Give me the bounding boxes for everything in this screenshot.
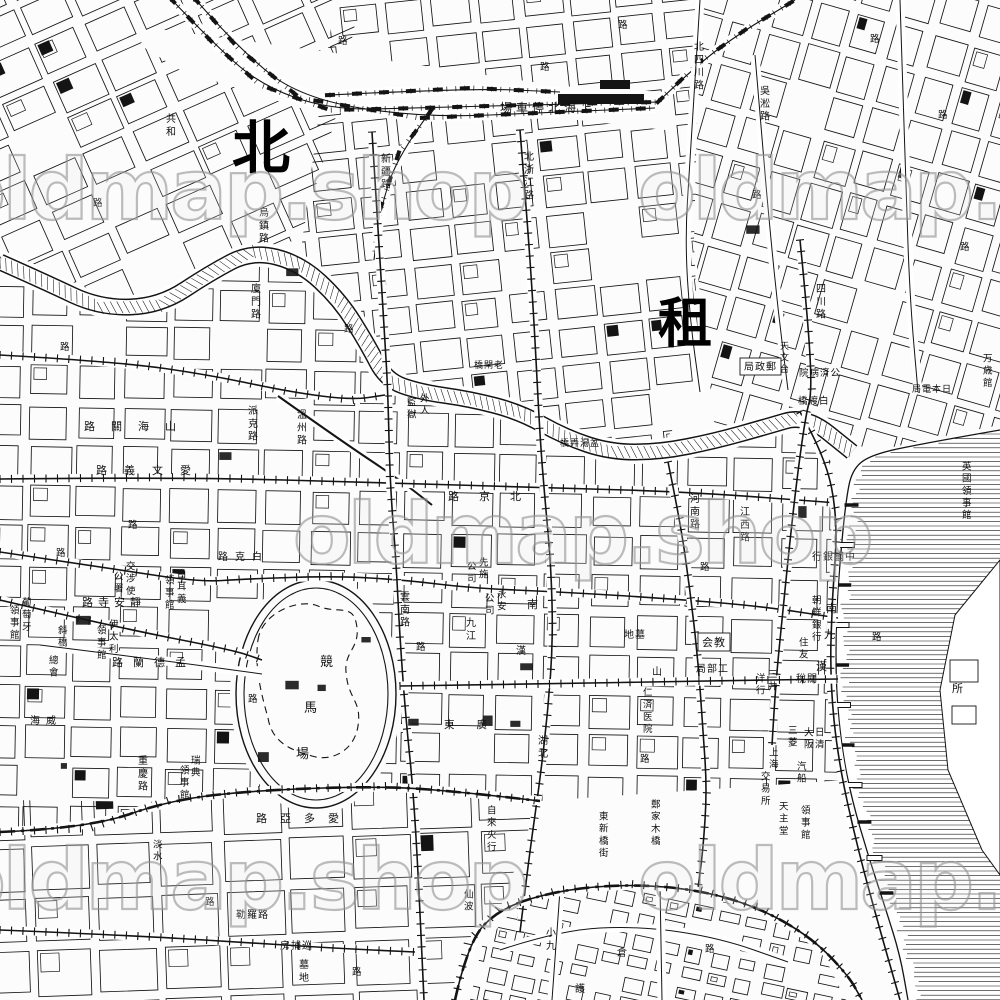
map-label: 井	[768, 681, 779, 693]
map-label: 人	[420, 406, 431, 417]
map-label: 橋閘老	[474, 359, 504, 371]
map-label: 局電本日	[912, 383, 952, 395]
map-label: 涉	[126, 573, 137, 585]
map-label: 來	[487, 818, 498, 829]
map-label: 路	[694, 78, 705, 91]
map-label: 路	[205, 896, 216, 908]
map-label: 永	[497, 589, 508, 601]
map-label: 路亞多愛	[256, 811, 352, 825]
map-label: 大	[804, 727, 815, 739]
map-label: 疆	[381, 166, 392, 178]
map-label: 路京北	[448, 489, 541, 503]
map-label: 獄	[407, 409, 418, 421]
map-label: 路寺安靜	[82, 595, 146, 609]
map-label: 路	[93, 197, 104, 209]
old-shanghai-map: 共和烏鎮路廈門路新疆路北浙江路北四川路吳淞路溫州路派克路路關海山路義文愛路京北橋…	[0, 0, 1000, 1000]
map-label: 淡	[153, 840, 164, 851]
district-big-label: 北	[232, 114, 291, 182]
map-label: 馬	[304, 701, 318, 716]
map-label: 司	[467, 574, 478, 585]
map-label: 海	[769, 759, 780, 771]
map-label: 路	[56, 547, 67, 559]
map-label: 文	[780, 352, 790, 364]
map-label: 路	[248, 430, 259, 443]
map-label: 山	[652, 666, 663, 678]
map-label: 漢	[816, 660, 828, 673]
map-label: 会教	[702, 636, 726, 649]
map-label: 行	[487, 841, 498, 853]
map-label: 三	[768, 670, 779, 681]
map-label: 河	[690, 493, 701, 505]
map-label: 街	[599, 847, 610, 859]
map-label: 路	[816, 308, 827, 321]
map-label: 医	[643, 712, 654, 723]
map-label: 監	[407, 397, 418, 409]
map-label: 克	[248, 418, 259, 430]
map-label: 東	[599, 811, 610, 823]
map-label: 新	[381, 152, 392, 165]
map-label: 東廣	[444, 718, 509, 731]
map-label: 場	[296, 747, 310, 762]
map-label: 火	[487, 830, 498, 841]
map-label: 派	[248, 405, 259, 417]
map-label: 事	[962, 497, 973, 509]
map-label: 公	[485, 594, 496, 605]
map-label: 路	[705, 943, 716, 955]
map-label: 路	[381, 178, 392, 191]
map-label: 小	[546, 927, 557, 939]
map-label: 淞	[760, 98, 771, 110]
map-label: 牙	[22, 622, 33, 633]
map-label: 橋	[58, 637, 69, 649]
map-label: 地	[299, 971, 310, 984]
map-label: 行	[812, 631, 823, 643]
map-label: 館	[180, 789, 191, 801]
map-label: 易	[761, 784, 772, 795]
map-label: 事	[10, 617, 21, 629]
map-label: 烏	[259, 206, 270, 219]
map-label: 司	[485, 606, 496, 617]
map-label: 所	[952, 682, 964, 695]
map-label: 典	[191, 767, 202, 779]
map-label: 路	[338, 35, 349, 47]
map-label: 館	[97, 649, 108, 661]
map-label: 館	[10, 629, 21, 641]
map-canvas[interactable]: 共和烏鎮路廈門路新疆路北浙江路北四川路吳淞路溫州路派克路路關海山路義文愛路京北橋…	[0, 0, 1000, 1000]
map-label: 館	[983, 377, 994, 389]
map-label: 波	[464, 901, 475, 913]
map-label: 江	[740, 506, 751, 518]
map-label: 菱	[788, 737, 799, 749]
map-label: 路	[400, 616, 411, 629]
map-label: 領	[180, 765, 191, 777]
district-big-label: 租	[658, 291, 713, 355]
map-label: 台	[780, 363, 790, 375]
map-label: 汽	[797, 761, 808, 773]
map-label: 路	[251, 308, 262, 321]
map-label: 清	[815, 739, 826, 751]
map-label: 州	[297, 422, 308, 434]
map-label: 局部工	[696, 662, 729, 675]
map-label: 鮮	[812, 607, 823, 619]
map-label: 總	[49, 655, 60, 667]
map-label: 鎮	[259, 219, 270, 232]
map-label: 路	[752, 189, 763, 201]
map-label: 房捕巡	[280, 939, 313, 952]
map-label: 堂	[779, 825, 790, 837]
map-label: 墓	[299, 958, 310, 971]
map-label: 先	[479, 557, 490, 569]
map-label: 鄭	[651, 799, 662, 811]
map-label: 路	[870, 33, 881, 45]
map-label: 領	[165, 575, 176, 587]
map-label: 水	[153, 851, 164, 863]
map-label: 南	[400, 603, 411, 616]
map-label: 橋渡白	[798, 395, 830, 407]
map-label: 天	[780, 342, 790, 352]
map-label: 路	[352, 966, 363, 978]
map-label: 場車停北海上	[500, 100, 596, 115]
map-label: 三	[788, 726, 799, 737]
map-label: 新	[599, 823, 610, 835]
map-label: 路	[297, 434, 308, 447]
map-label: 南	[826, 602, 838, 615]
map-label: 仙	[464, 889, 475, 901]
map-label: 主	[779, 813, 790, 825]
map-label: 路克白	[218, 550, 269, 563]
map-label: 署	[114, 584, 125, 595]
map-label: 院病済公	[799, 367, 841, 379]
map-label: 溫	[297, 409, 308, 421]
map-label: 路	[760, 110, 771, 123]
map-label: 斜	[58, 625, 69, 637]
map-label: 廈	[251, 282, 262, 295]
map-label: 英	[962, 461, 973, 473]
map-label: 万	[983, 354, 994, 365]
map-label: 銀	[812, 619, 823, 631]
map-label: 友	[799, 649, 810, 661]
map-label: 太	[109, 631, 120, 643]
map-label: 西	[740, 520, 751, 531]
map-label: 地墓	[624, 628, 646, 641]
map-label: 日	[815, 728, 826, 739]
map-label: 路蘭德孟	[112, 655, 196, 669]
map-label: 門	[251, 296, 262, 308]
map-label: 重	[138, 754, 149, 767]
map-label: 路	[128, 519, 139, 531]
map-label: 海威	[30, 714, 62, 727]
map-label: 萄	[22, 609, 33, 621]
map-label: 慶	[138, 767, 149, 780]
map-label: 木	[651, 823, 662, 835]
map-label: 局政郵	[744, 360, 777, 373]
map-label: 九	[824, 628, 836, 641]
map-label: 路	[540, 61, 551, 73]
map-label: 外	[420, 393, 431, 405]
map-label: 公	[114, 572, 125, 583]
map-label: 領	[10, 605, 21, 617]
map-label: 路	[618, 19, 629, 31]
map-label: 川	[816, 297, 827, 308]
map-label: 天	[779, 802, 790, 813]
map-label: 路	[138, 780, 149, 793]
map-label: 川	[694, 68, 705, 79]
map-label: 和	[166, 126, 177, 138]
map-label: 路	[248, 693, 259, 705]
map-label: 自	[487, 805, 498, 817]
map-label: 橋	[599, 835, 610, 847]
map-label: 路	[416, 641, 427, 653]
map-label: 歳	[983, 365, 994, 377]
map-label: 路	[259, 232, 270, 245]
map-label: 四	[816, 284, 827, 295]
map-label: 湖	[538, 735, 549, 747]
map-label: 公	[467, 562, 478, 573]
map-label: 南	[527, 598, 539, 611]
map-label: 路	[640, 753, 651, 765]
map-label: 江	[466, 630, 477, 642]
map-label: 事	[165, 587, 176, 599]
map-label: 義	[177, 593, 188, 605]
map-label: 路義文愛	[96, 463, 208, 477]
map-label: 北	[694, 41, 705, 53]
map-label: 吳	[760, 85, 771, 97]
map-label: 事	[97, 637, 108, 649]
map-label: 領	[801, 805, 812, 817]
map-label: 阪	[804, 740, 815, 751]
map-label: 路	[524, 188, 535, 201]
map-label: 稅關	[796, 673, 818, 685]
map-label: 南	[690, 505, 701, 518]
map-label: 事	[180, 777, 191, 789]
map-label: 路	[344, 323, 355, 335]
map-label: 倉	[617, 946, 628, 959]
map-label: 路	[60, 341, 71, 353]
map-label: 耳	[177, 582, 188, 593]
map-label: 北	[524, 151, 535, 163]
map-label: 會	[49, 667, 60, 679]
map-label: 館	[801, 829, 812, 841]
map-label: 伊	[109, 619, 120, 631]
map-label: 住	[799, 637, 810, 649]
map-label: 路	[740, 531, 751, 544]
map-label: 雲	[400, 591, 411, 603]
map-label: 路	[700, 561, 711, 573]
map-label: 漢	[516, 644, 527, 657]
map-label: 上	[769, 748, 780, 759]
map-label: 洋	[756, 673, 767, 685]
map-label: 施	[479, 569, 490, 581]
map-label: 江	[524, 177, 535, 189]
map-label: 船	[797, 773, 808, 785]
map-label: 白	[177, 569, 188, 581]
map-label: 済	[643, 699, 654, 711]
map-label: 路	[872, 631, 883, 643]
map-label: 九	[546, 940, 557, 952]
map-label: 橋弄湯盆	[560, 437, 600, 449]
map-label: 領	[97, 625, 108, 637]
map-label: 競	[320, 655, 334, 670]
map-label: 葡	[22, 597, 33, 609]
map-label: 國	[962, 474, 973, 485]
map-label: 四	[694, 55, 705, 66]
map-label: 浙	[524, 164, 535, 176]
map-label: 院	[643, 723, 654, 735]
map-label: 橋	[651, 835, 662, 847]
map-label: 利	[109, 643, 120, 655]
map-label: 行銀國中	[812, 550, 856, 563]
map-label: 路關海山	[84, 419, 192, 433]
map-label: 交	[126, 561, 137, 573]
map-label: 路	[960, 241, 971, 253]
map-label: 館	[165, 599, 176, 611]
map-label: 九	[466, 617, 477, 629]
map-label: 仁	[643, 687, 654, 699]
map-label: 安	[497, 601, 508, 613]
map-label: 勒羅路	[236, 908, 269, 921]
map-label: 事	[801, 817, 812, 829]
map-label: 行	[756, 685, 767, 697]
map-label: 所	[761, 796, 772, 807]
map-label: 家	[651, 811, 662, 823]
map-label: 交	[761, 771, 772, 783]
map-label: 共	[166, 113, 177, 125]
map-label: 館	[962, 509, 973, 521]
map-label: 護	[575, 982, 586, 995]
map-label: 路	[690, 518, 701, 531]
map-label: 朝	[812, 596, 823, 607]
map-label: 北	[538, 748, 549, 760]
map-label: 瑞	[191, 755, 202, 767]
map-label: 路	[938, 109, 949, 121]
map-label: 領	[962, 485, 973, 497]
